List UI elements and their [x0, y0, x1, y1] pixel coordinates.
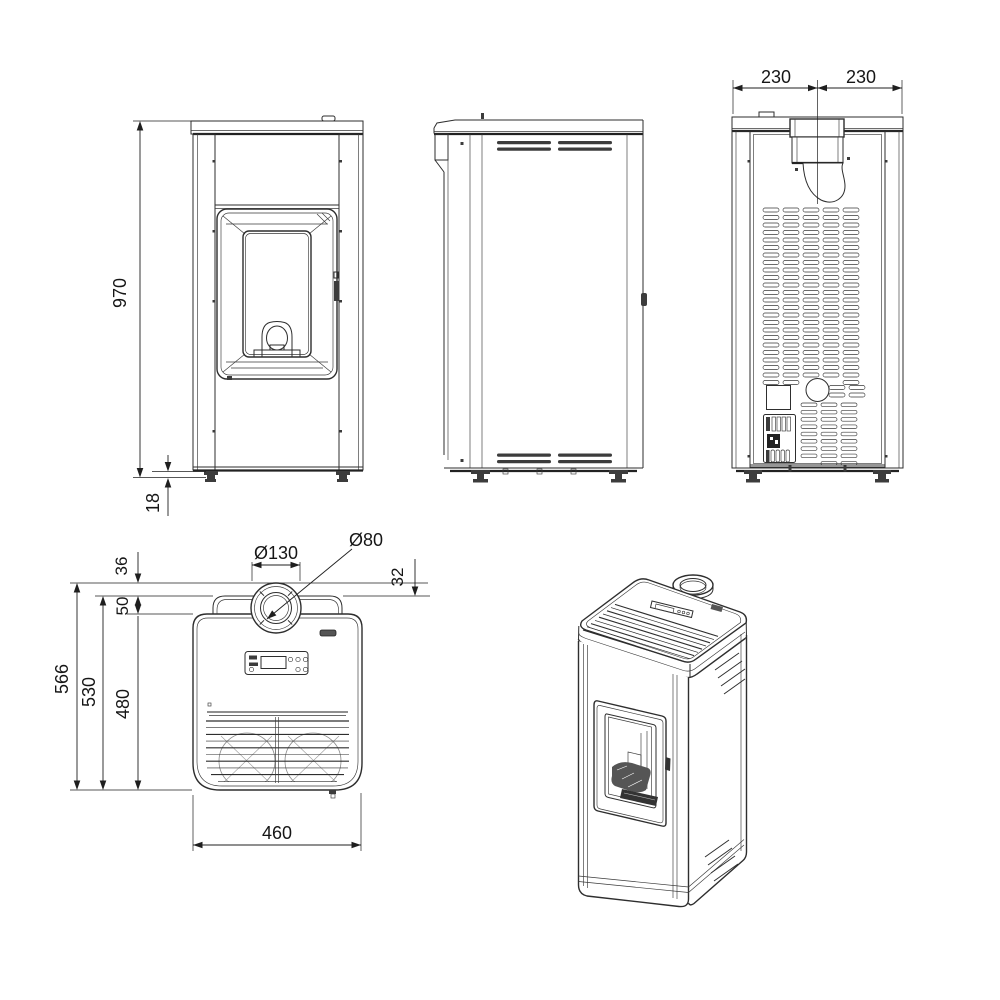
dimension-depths: 566 530 480 36 50 [52, 552, 138, 788]
rear-junction-box [767, 386, 791, 410]
dimension-collar-diameter: Ø130 [252, 543, 300, 581]
dim-collar-to-back: 36 [112, 557, 131, 576]
dimension-width: 460 [193, 793, 361, 851]
dim-depth-mid: 530 [79, 677, 99, 707]
dim-rear-right: 230 [846, 67, 876, 87]
front-view: 970 18 [110, 116, 363, 516]
top-view: 566 530 480 36 50 32 Ø130 Ø80 460 [52, 530, 430, 851]
flue-collar [251, 583, 301, 633]
dim-width: 460 [262, 823, 292, 843]
hopper-latch [320, 630, 336, 636]
dim-depth-total: 566 [52, 664, 72, 694]
power-socket [767, 434, 780, 448]
side-door-handle [641, 293, 647, 306]
door-window [243, 231, 311, 357]
dimension-front-height: 970 [110, 121, 206, 478]
door-handle [334, 281, 340, 301]
dim-collar-side-offset: 32 [388, 568, 407, 587]
dim-pipe-diameter: Ø80 [349, 530, 383, 550]
dim-hump-depth: 50 [113, 597, 132, 616]
rear-flue-outlet [790, 119, 850, 202]
rear-fan-hole [806, 379, 829, 402]
side-vents [497, 141, 612, 463]
front-door [217, 209, 340, 380]
rear-power-panel [764, 415, 796, 463]
rear-view: 230 230 [732, 67, 903, 483]
front-feet [204, 471, 350, 482]
dim-front-height: 970 [110, 278, 130, 308]
top-knob [322, 116, 335, 121]
dimension-base-height: 18 [143, 455, 206, 516]
door-latch [329, 790, 336, 794]
pellet-stove-drawing: 970 18 [0, 0, 1000, 1000]
control-panel [245, 652, 308, 675]
flue-duct [803, 163, 845, 202]
dim-depth-body: 480 [113, 689, 133, 719]
dim-rear-left: 230 [761, 67, 791, 87]
technical-drawing-canvas: 970 18 [0, 0, 1000, 1000]
dim-collar-diameter: Ø130 [254, 543, 298, 563]
iso-door-handle [665, 757, 671, 771]
dim-base-height: 18 [143, 493, 163, 513]
isometric-view [579, 575, 747, 907]
side-view [434, 113, 647, 483]
